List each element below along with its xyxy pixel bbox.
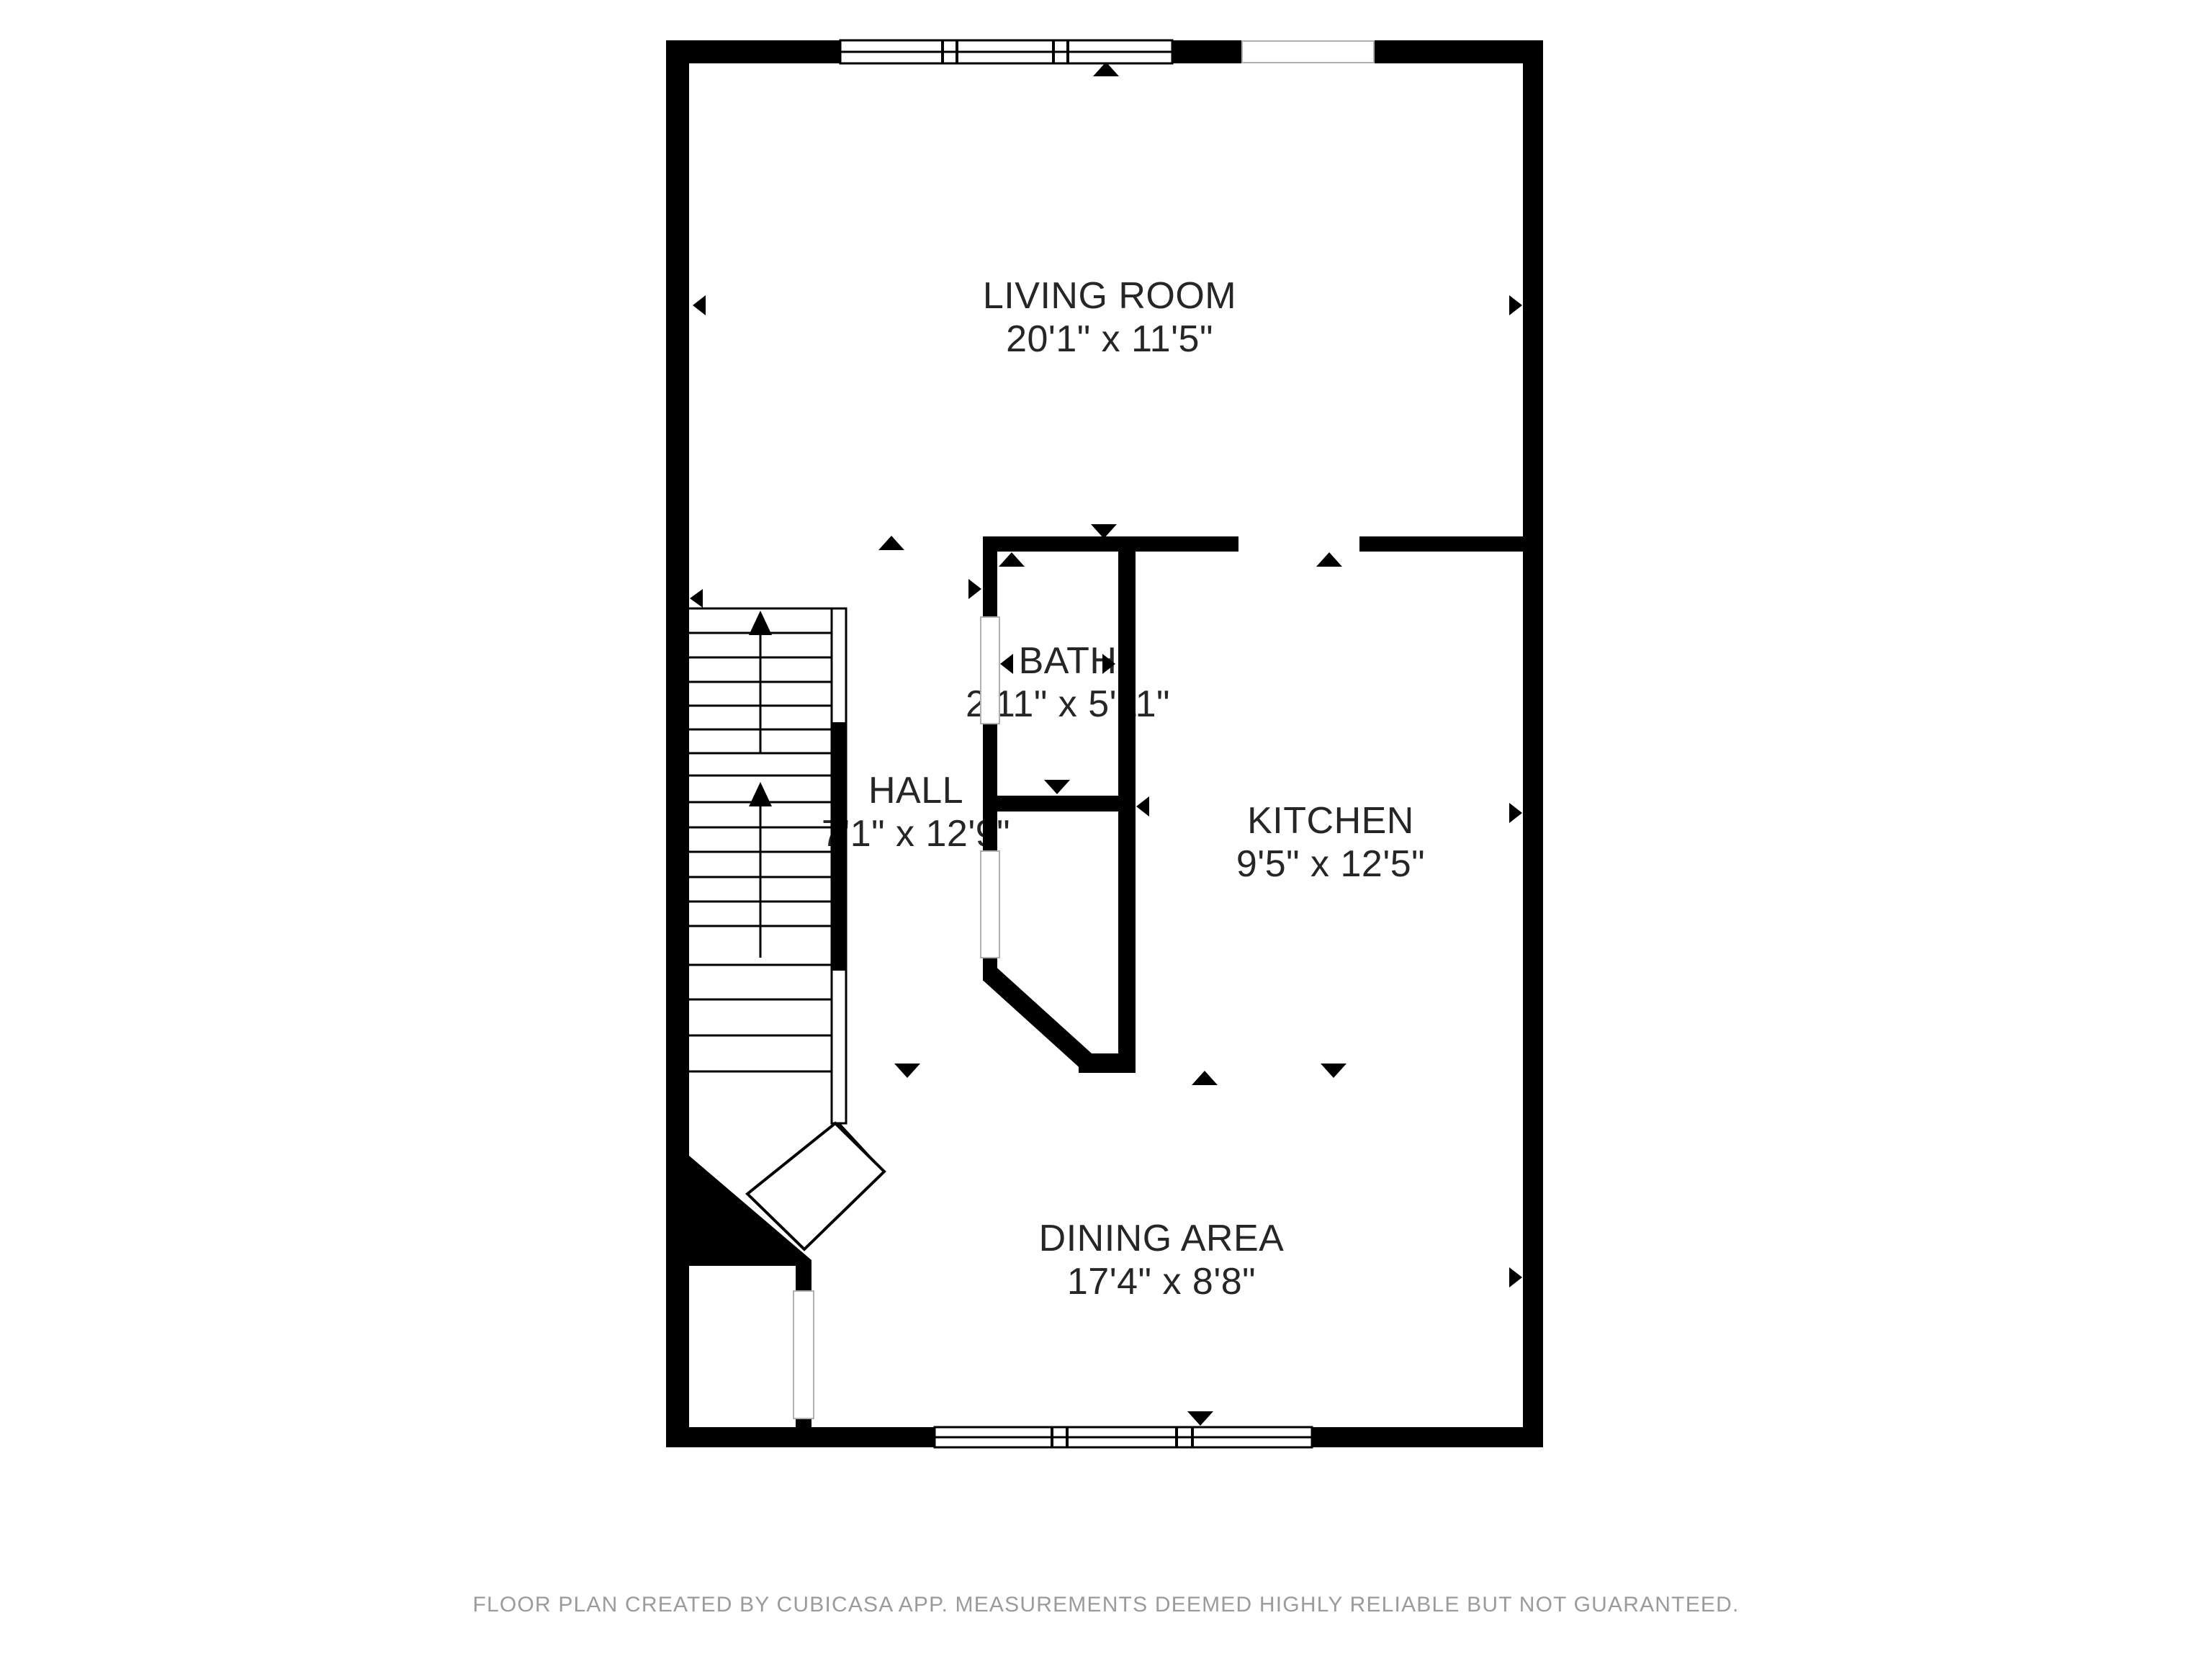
marker-right-icon [1509,295,1522,315]
marker-up-icon [999,552,1025,567]
wall-top-left [666,40,840,63]
wall-bottom-right [1312,1427,1543,1447]
marker-left-icon [693,295,706,315]
marker-right-icon [968,579,981,599]
marker-up-icon [1192,1071,1218,1085]
marker-left-icon [690,589,703,608]
staircase [689,608,884,1249]
marker-down-icon [1187,1411,1213,1426]
wall-top-mid [1172,40,1242,63]
marker-right-icon [1102,654,1115,674]
stair-up-arrow-icon [749,782,772,806]
opening-top-right [1242,41,1374,63]
door-opening-bath [981,617,999,724]
floor-plan-drawing [0,0,2212,1659]
marker-down-icon [1321,1064,1346,1078]
door-opening-understair [793,1291,814,1419]
door-opening-closet [981,851,999,958]
stair-up-arrow-icon [749,611,772,635]
marker-down-icon [1044,780,1070,794]
wall-bath-bottom [983,796,1136,811]
marker-up-icon [1316,552,1342,567]
footer-disclaimer: FLOOR PLAN CREATED BY CUBICASA APP. MEAS… [0,1593,2212,1617]
marker-right-icon [1509,803,1522,823]
marker-up-icon [878,536,904,550]
marker-left-icon [1000,654,1013,674]
wall-bath-left-lower [983,724,997,851]
wall-bath-left-upper [983,536,997,617]
wall-top-right [1374,40,1543,63]
stair-wall-segment [832,722,846,971]
marker-down-icon [894,1064,920,1078]
wall-bottom-left [666,1427,935,1447]
wall-living-kitchen-right [1359,536,1523,552]
marker-left-icon [1136,796,1149,817]
floor-plan-canvas: LIVING ROOM 20'1" x 11'5" BATH 2'11" x 5… [0,0,2212,1659]
marker-right-icon [1509,1267,1522,1287]
wall-right [1523,40,1543,1447]
wall-living-kitchen-left [983,536,1238,552]
windows-and-openings [793,40,1374,1447]
wall-closet-diagonal [989,974,1087,1062]
